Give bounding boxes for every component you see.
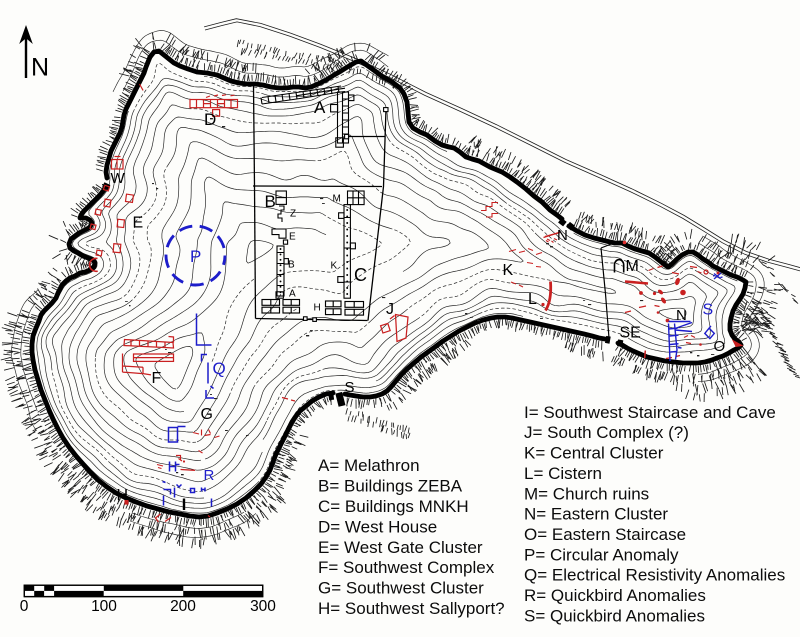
- svg-text:300: 300: [250, 598, 276, 615]
- svg-text:L= Cistern: L= Cistern: [524, 464, 602, 483]
- svg-text:B: B: [288, 260, 295, 271]
- svg-text:D= West House: D= West House: [318, 517, 437, 536]
- svg-text:E: E: [289, 232, 296, 243]
- svg-text:C= Buildings MNKH: C= Buildings MNKH: [318, 497, 469, 516]
- svg-text:A: A: [314, 98, 326, 117]
- svg-text:S= Quickbird Anomalies: S= Quickbird Anomalies: [524, 606, 705, 625]
- svg-text:A: A: [289, 289, 296, 300]
- svg-text:O: O: [714, 338, 726, 355]
- svg-text:C: C: [354, 265, 367, 285]
- svg-text:M: M: [626, 258, 639, 275]
- svg-text:G: G: [201, 406, 213, 423]
- svg-text:100: 100: [91, 598, 117, 615]
- svg-text:A= Melathron: A= Melathron: [318, 456, 420, 475]
- svg-text:J: J: [386, 301, 394, 318]
- svg-text:W: W: [111, 170, 126, 187]
- svg-text:Q: Q: [213, 359, 226, 378]
- svg-text:N: N: [676, 307, 687, 324]
- svg-text:H= Southwest Sallyport?: H= Southwest Sallyport?: [318, 599, 505, 618]
- svg-text:S: S: [345, 379, 355, 396]
- svg-text:0: 0: [20, 598, 29, 615]
- svg-text:M= Church ruins: M= Church ruins: [524, 484, 649, 503]
- svg-text:K: K: [331, 261, 338, 272]
- svg-text:O= Eastern Staircase: O= Eastern Staircase: [524, 525, 686, 544]
- svg-text:F: F: [152, 370, 162, 387]
- svg-text:R: R: [204, 467, 215, 484]
- svg-text:J= South Complex (?): J= South Complex (?): [524, 423, 689, 442]
- svg-text:E= West Gate Cluster: E= West Gate Cluster: [318, 538, 483, 557]
- svg-text:E: E: [133, 215, 144, 232]
- svg-text:H: H: [314, 303, 321, 314]
- svg-text:P: P: [190, 247, 201, 266]
- svg-text:P= Circular Anomaly: P= Circular Anomaly: [524, 545, 679, 564]
- svg-text:N: N: [31, 54, 49, 82]
- svg-text:K: K: [503, 262, 514, 279]
- svg-text:N: N: [557, 227, 568, 244]
- svg-text:K= Central Cluster: K= Central Cluster: [524, 444, 664, 463]
- svg-text:D: D: [204, 110, 216, 129]
- svg-text:N= Eastern Cluster: N= Eastern Cluster: [524, 505, 668, 524]
- svg-text:F= Southwest Complex: F= Southwest Complex: [318, 558, 495, 577]
- svg-text:L: L: [528, 291, 537, 308]
- svg-text:B= Buildings ZEBA: B= Buildings ZEBA: [318, 477, 463, 496]
- svg-text:SE: SE: [620, 325, 641, 342]
- svg-text:R= Quickbird Anomalies: R= Quickbird Anomalies: [524, 586, 706, 605]
- svg-text:200: 200: [170, 598, 196, 615]
- svg-text:S: S: [703, 302, 714, 319]
- svg-text:H: H: [117, 487, 129, 504]
- svg-text:B: B: [265, 192, 276, 211]
- svg-text:I= Southwest Staircase and Cav: I= Southwest Staircase and Cave: [524, 403, 776, 422]
- svg-text:M: M: [333, 194, 341, 205]
- svg-text:G= Southwest Cluster: G= Southwest Cluster: [318, 579, 484, 598]
- svg-text:Q= Electrical Resistivity Anom: Q= Electrical Resistivity Anomalies: [524, 566, 785, 585]
- svg-text:Z: Z: [290, 209, 296, 220]
